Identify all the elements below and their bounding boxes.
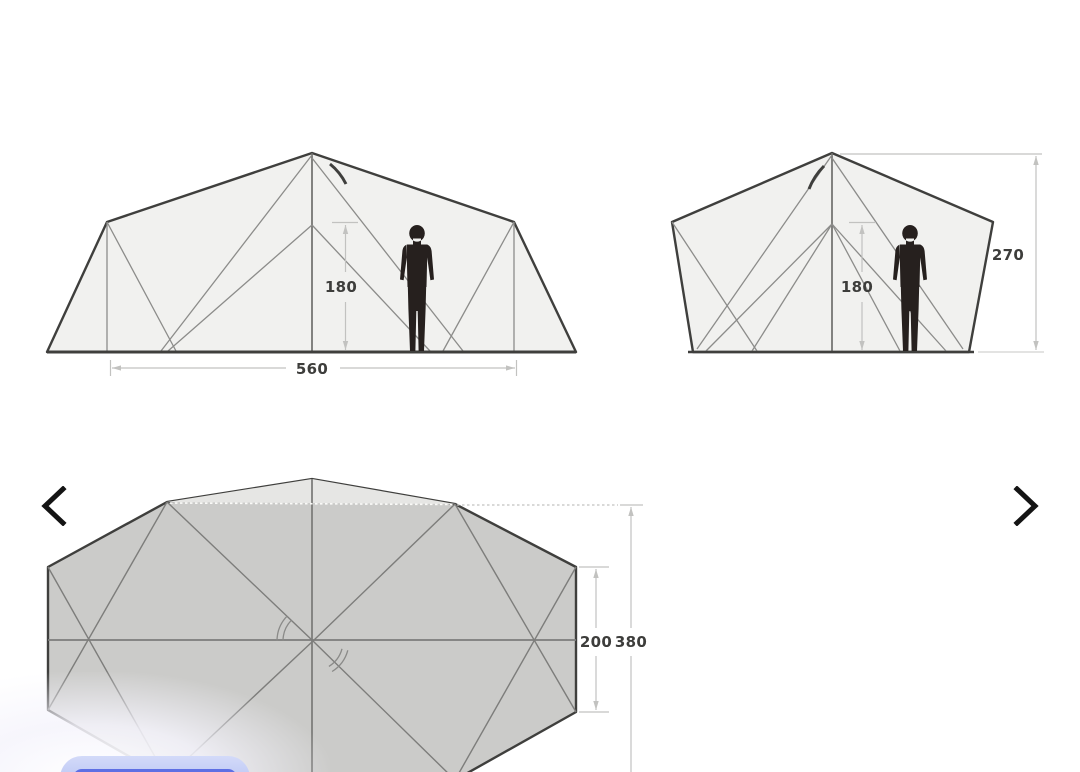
front-view-diagram: 180 270 [672, 153, 1044, 352]
side-length-dimension: 560 [111, 360, 517, 378]
product-image-viewer: 180 560 [0, 0, 1080, 772]
next-image-button[interactable] [1004, 482, 1048, 530]
chevron-left-icon [39, 486, 69, 526]
front-peak-height-label: 270 [992, 246, 1024, 264]
previous-image-button[interactable] [32, 482, 76, 530]
floor-plan-door-panel [167, 479, 455, 504]
bottom-overlay-chip[interactable] [60, 756, 250, 772]
floor-plan-diagram: 200 380 [48, 479, 647, 772]
floor-inner-depth-label: 200 [580, 633, 612, 651]
floor-inner-depth-dimension: 200 [579, 567, 612, 712]
side-length-label: 560 [296, 360, 328, 378]
chevron-right-icon [1011, 486, 1041, 526]
side-view-diagram: 180 560 [47, 153, 576, 378]
side-height-label: 180 [325, 278, 357, 296]
tent-dimension-diagram: 180 560 [0, 0, 1080, 772]
front-inner-height-label: 180 [841, 278, 873, 296]
floor-total-depth-label: 380 [615, 633, 647, 651]
